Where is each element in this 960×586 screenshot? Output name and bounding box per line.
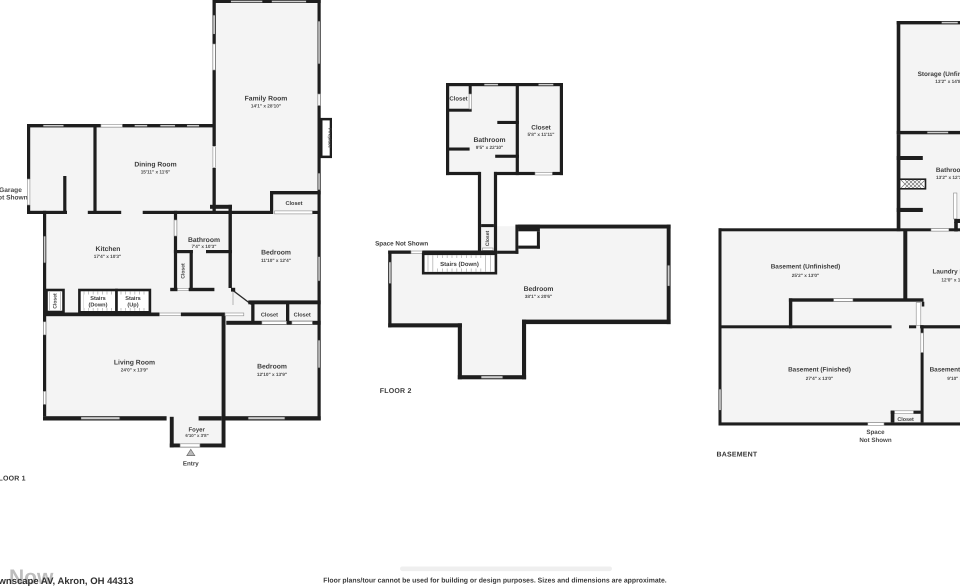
svg-text:15'11" x 11'6": 15'11" x 11'6" [141, 170, 171, 175]
svg-text:(Up): (Up) [127, 302, 138, 309]
svg-text:Bathroom: Bathroom [473, 137, 505, 144]
svg-text:FLOOR 1: FLOOR 1 [0, 476, 26, 483]
svg-text:Fireplace: Fireplace [327, 128, 332, 148]
svg-text:27'4" x 13'0": 27'4" x 13'0" [806, 376, 834, 381]
svg-text:9'5" x 22'10": 9'5" x 22'10" [476, 145, 504, 150]
svg-text:(Down): (Down) [89, 302, 108, 309]
svg-text:11'10" x 12'4": 11'10" x 12'4" [261, 258, 291, 263]
svg-text:Garage: Garage [0, 187, 22, 194]
svg-text:Bedroom: Bedroom [257, 364, 287, 371]
svg-text:Closet: Closet [449, 96, 467, 103]
svg-text:9'10" x 13'0": 9'10" x 13'0" [947, 376, 960, 381]
svg-text:12'10" x 13'9": 12'10" x 13'9" [257, 372, 287, 377]
svg-text:38'1" x 20'6": 38'1" x 20'6" [525, 294, 553, 299]
svg-text:Entry: Entry [183, 460, 199, 467]
svg-text:Bedroom: Bedroom [524, 286, 554, 293]
svg-text:Space Not Shown: Space Not Shown [375, 241, 428, 248]
svg-text:24'0" x 13'9": 24'0" x 13'9" [121, 368, 149, 373]
svg-text:13'2" x 12'11": 13'2" x 12'11" [936, 175, 960, 180]
svg-text:Basement (Finished): Basement (Finished) [788, 367, 851, 374]
svg-text:Kitchen: Kitchen [96, 246, 121, 253]
svg-text:Basement (Unfinished): Basement (Unfinished) [771, 264, 841, 271]
svg-text:Not Shown: Not Shown [859, 437, 892, 444]
svg-text:5'8" x 11'11": 5'8" x 11'11" [527, 132, 554, 137]
svg-text:Bathroom: Bathroom [188, 237, 220, 244]
svg-text:Family Room: Family Room [245, 96, 288, 103]
svg-text:Stairs (Down): Stairs (Down) [440, 261, 479, 268]
svg-text:12'0" x 11'5": 12'0" x 11'5" [941, 278, 960, 283]
svg-text:Closet: Closet [485, 231, 491, 247]
svg-text:Dining Room: Dining Room [134, 162, 176, 169]
svg-text:6'10" x 3'8": 6'10" x 3'8" [185, 433, 208, 438]
svg-text:Basement (Finished): Basement (Finished) [930, 367, 960, 374]
svg-text:Closet: Closet [531, 125, 551, 132]
svg-text:Closet: Closet [53, 293, 59, 309]
svg-text:Closet: Closet [897, 417, 914, 423]
svg-text:Closet: Closet [285, 200, 302, 207]
svg-text:14'1" x 28'10": 14'1" x 28'10" [251, 104, 281, 109]
svg-text:Bedroom: Bedroom [261, 250, 291, 257]
svg-text:Storage (Unfinished): Storage (Unfinished) [918, 71, 960, 78]
svg-text:Floor plans/tour cannot be use: Floor plans/tour cannot be used for buil… [323, 578, 667, 585]
svg-text:Closet: Closet [181, 263, 187, 279]
svg-text:Stairs: Stairs [90, 295, 106, 302]
svg-text:25'2" x 13'0": 25'2" x 13'0" [792, 273, 820, 278]
svg-text:Closet: Closet [261, 312, 278, 319]
svg-text:Stairs: Stairs [125, 295, 141, 302]
svg-text:Living Room: Living Room [114, 360, 155, 367]
svg-text:FLOOR 2: FLOOR 2 [380, 388, 412, 395]
svg-text:Closet: Closet [294, 312, 311, 319]
svg-text:Space: Space [866, 429, 885, 436]
svg-text:Laundry Room: Laundry Room [932, 269, 960, 276]
svg-text:wnscape AV, Akron, OH 44313: wnscape AV, Akron, OH 44313 [0, 576, 134, 586]
svg-text:BASEMENT: BASEMENT [717, 452, 758, 459]
svg-text:Not Shown: Not Shown [0, 194, 28, 201]
svg-text:17'4" x 10'3": 17'4" x 10'3" [94, 254, 122, 259]
svg-text:7'4" x 10'3": 7'4" x 10'3" [192, 244, 217, 249]
svg-text:Bathroom: Bathroom [936, 167, 960, 174]
svg-text:13'2" x 14'8": 13'2" x 14'8" [935, 79, 960, 84]
